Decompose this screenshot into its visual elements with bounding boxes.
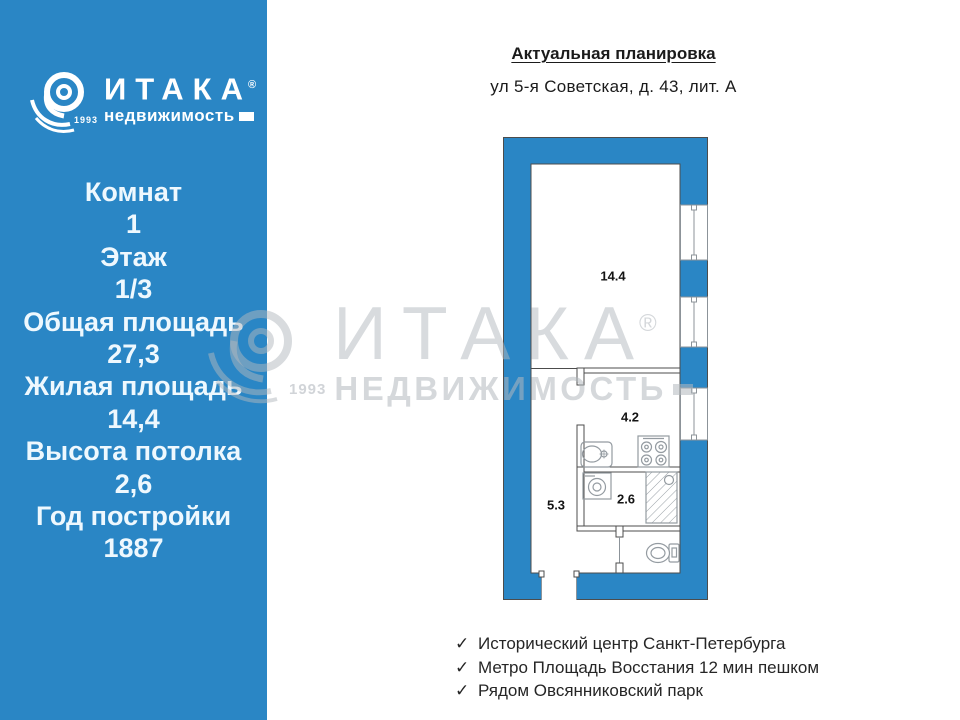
feature-text: Исторический центр Санкт-Петербурга [478, 632, 785, 656]
sidebar: ИТАКА® недвижимость 1993 Комнат 1 Этаж 1… [0, 0, 267, 720]
logo-sub-text: недвижимость [104, 106, 235, 126]
sink-icon [581, 442, 612, 467]
hall-area-label: 5.3 [547, 498, 565, 513]
stove-icon [638, 436, 669, 467]
stat-label-floor: Этаж [0, 241, 267, 273]
interior-walls [531, 368, 680, 573]
bath-area-label: 2.6 [617, 492, 635, 507]
plan-address: ул 5-я Советская, д. 43, лит. А [267, 77, 960, 97]
stat-label-ceiling: Высота потолка [0, 435, 267, 467]
entrance-opening [539, 571, 579, 600]
logo-brand-text: ИТАКА® [104, 70, 254, 104]
room-area-label: 14.4 [600, 269, 625, 284]
window-icon [681, 205, 708, 440]
stat-value-total-area: 27,3 [0, 338, 267, 370]
logo-dash [239, 112, 254, 121]
feature-item: ✓ Метро Площадь Восстания 12 мин пешком [455, 656, 819, 680]
real-estate-flyer: ИТАКА® недвижимость 1993 Комнат 1 Этаж 1… [0, 0, 960, 720]
plan-header: Актуальная планировка ул 5-я Советская, … [267, 44, 960, 97]
property-stats: Комнат 1 Этаж 1/3 Общая площадь 27,3 Жил… [0, 176, 267, 565]
floor-plan-drawing [503, 137, 708, 600]
watermark-year: 1993 [289, 381, 326, 398]
check-icon: ✓ [455, 656, 478, 680]
stat-value-ceiling: 2,6 [0, 468, 267, 500]
logo-year: 1993 [74, 115, 98, 125]
stat-value-floor: 1/3 [0, 273, 267, 305]
stat-value-year-built: 1887 [0, 532, 267, 564]
check-icon: ✓ [455, 632, 478, 656]
feature-text: Рядом Овсянниковский парк [478, 679, 703, 703]
stat-label-total-area: Общая площадь [0, 306, 267, 338]
feature-list: ✓ Исторический центр Санкт-Петербурга ✓ … [455, 632, 819, 703]
feature-item: ✓ Исторический центр Санкт-Петербурга [455, 632, 819, 656]
stat-label-rooms: Комнат [0, 176, 267, 208]
feature-item: ✓ Рядом Овсянниковский парк [455, 679, 819, 703]
kitchen-area-label: 4.2 [621, 410, 639, 425]
toilet-icon [647, 544, 680, 563]
stat-label-living-area: Жилая площадь [0, 370, 267, 402]
itaka-logo: ИТАКА® недвижимость 1993 [22, 58, 250, 138]
floor-plan: 14.4 4.2 5.3 2.6 [503, 137, 708, 600]
feature-text: Метро Площадь Восстания 12 мин пешком [478, 656, 819, 680]
washing-machine-icon [583, 473, 611, 499]
plan-title: Актуальная планировка [267, 44, 960, 64]
stat-value-living-area: 14,4 [0, 403, 267, 435]
stat-label-year-built: Год постройки [0, 500, 267, 532]
registered-mark: ® [248, 79, 256, 91]
shower-icon [646, 472, 677, 523]
stat-value-rooms: 1 [0, 208, 267, 240]
check-icon: ✓ [455, 679, 478, 703]
